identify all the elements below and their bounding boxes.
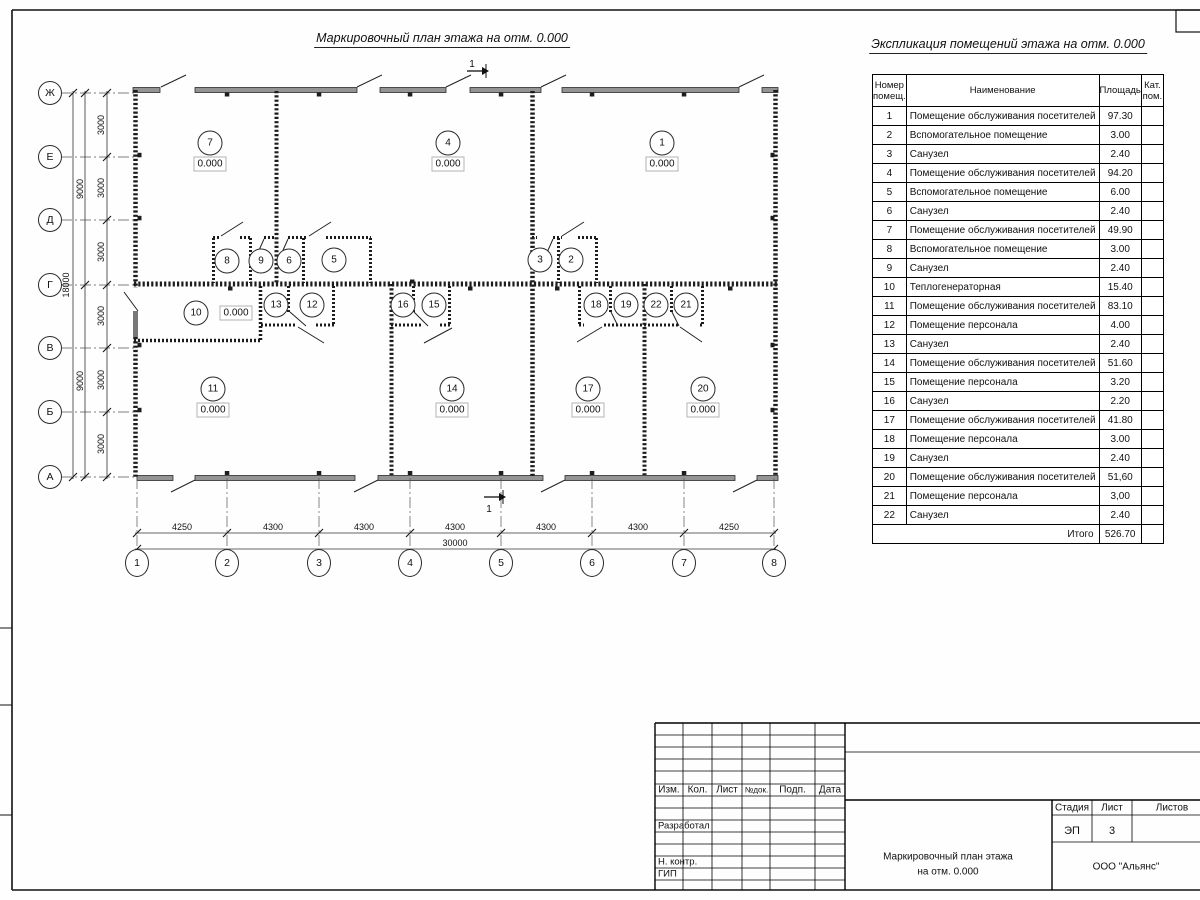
room-marker: 11 [201, 377, 226, 402]
room-marker: 1 [650, 131, 675, 156]
titleblock-role: ГИП [658, 869, 677, 880]
titleblock-header: №док. [745, 786, 768, 795]
col-axis-bubble: 6 [580, 549, 604, 577]
dimension-label: 4300 [354, 522, 374, 532]
row-axis-bubble: В [38, 336, 62, 360]
titleblock-header: Лист [716, 785, 738, 796]
dimension-label: 4300 [628, 522, 648, 532]
col-axis-bubble: 1 [125, 549, 149, 577]
col-axis-bubble: 3 [307, 549, 331, 577]
sheets-label: Листов [1156, 803, 1189, 814]
dimension-total-label: 30000 [442, 538, 467, 548]
stage-label: Стадия [1055, 803, 1089, 814]
room-marker: 6 [277, 249, 302, 274]
row-axis-bubble: Д [38, 208, 62, 232]
titleblock-role: Н. контр. [658, 857, 697, 868]
room-marker: 17 [576, 377, 601, 402]
dimension-label: 9000 [75, 371, 85, 391]
room-marker: 8 [215, 249, 240, 274]
room-marker: 21 [674, 293, 699, 318]
titleblock-header: Дата [819, 785, 841, 796]
dimension-label: 3000 [96, 306, 106, 326]
room-marker: 5 [322, 248, 347, 273]
room-marker: 13 [264, 293, 289, 318]
room-marker: 10 [184, 301, 209, 326]
room-marker: 7 [198, 131, 223, 156]
elevation-label: 0.000 [686, 403, 719, 418]
dimension-total-label: 18000 [61, 272, 71, 297]
elevation-label: 0.000 [196, 403, 229, 418]
dimension-label: 3000 [96, 242, 106, 262]
drawing-sheet: 1 1 [0, 0, 1200, 900]
sheet-label: Лист [1101, 803, 1123, 814]
titleblock-role: Разработал [658, 821, 710, 832]
room-marker: 3 [528, 248, 553, 273]
elevation-label: 0.000 [571, 403, 604, 418]
dimension-label: 3000 [96, 434, 106, 454]
titleblock-header: Кол. [688, 785, 708, 796]
col-axis-bubble: 7 [672, 549, 696, 577]
room-marker: 2 [559, 248, 584, 273]
stage-value: ЭП [1064, 825, 1080, 837]
room-marker: 4 [436, 131, 461, 156]
titleblock-header: Подп. [779, 785, 806, 796]
room-marker: 15 [422, 293, 447, 318]
room-marker: 12 [300, 293, 325, 318]
dimension-label: 4300 [445, 522, 465, 532]
room-marker: 22 [644, 293, 669, 318]
row-axis-bubble: А [38, 465, 62, 489]
plan-overlay: 70.00040.00010.000896532100.000131216151… [0, 0, 1200, 900]
row-axis-bubble: Е [38, 145, 62, 169]
elevation-label: 0.000 [193, 157, 226, 172]
titleblock-header: Изм. [658, 785, 679, 796]
dimension-label: 4250 [172, 522, 192, 532]
organization-name: ООО "Альянс" [1093, 862, 1160, 873]
col-axis-bubble: 2 [215, 549, 239, 577]
row-axis-bubble: Г [38, 273, 62, 297]
room-marker: 9 [249, 249, 274, 274]
dimension-label: 3000 [96, 115, 106, 135]
room-marker: 18 [584, 293, 609, 318]
dimension-label: 4300 [263, 522, 283, 532]
col-axis-bubble: 8 [762, 549, 786, 577]
dimension-label: 3000 [96, 178, 106, 198]
elevation-label: 0.000 [645, 157, 678, 172]
doc-title-line1: Маркировочный план этажа [883, 852, 1013, 863]
dimension-label: 4250 [719, 522, 739, 532]
dimension-label: 3000 [96, 370, 106, 390]
col-axis-bubble: 5 [489, 549, 513, 577]
room-marker: 19 [614, 293, 639, 318]
row-axis-bubble: Ж [38, 81, 62, 105]
room-marker: 14 [440, 377, 465, 402]
elevation-label: 0.000 [435, 403, 468, 418]
doc-title-line2: на отм. 0.000 [917, 867, 978, 878]
row-axis-bubble: Б [38, 400, 62, 424]
dimension-label: 9000 [75, 179, 85, 199]
col-axis-bubble: 4 [398, 549, 422, 577]
elevation-label: 0.000 [431, 157, 464, 172]
room-marker: 20 [691, 377, 716, 402]
sheet-number: 3 [1109, 825, 1115, 837]
dimension-label: 4300 [536, 522, 556, 532]
room-marker: 16 [391, 293, 416, 318]
elevation-label: 0.000 [219, 306, 252, 321]
